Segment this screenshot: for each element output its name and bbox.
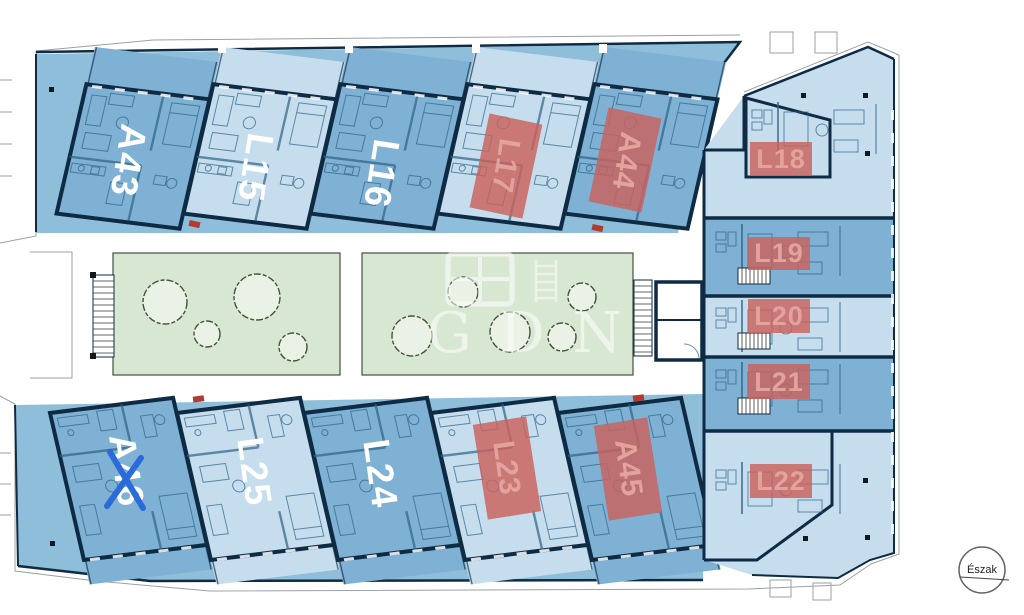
elevator-core — [656, 282, 702, 360]
floor-plan-drawing: A43 L15 L16 L17 A44 A46 L25 L24 L23 A45 … — [0, 0, 1024, 615]
label-l21: L21 — [754, 367, 804, 397]
compass: Észak — [959, 547, 1009, 593]
label-l22: L22 — [756, 466, 806, 496]
label-l20: L20 — [754, 301, 804, 331]
label-l19: L19 — [754, 238, 804, 268]
floor-plan-page: A43 L15 L16 L17 A44 A46 L25 L24 L23 A45 … — [0, 0, 1024, 615]
compass-label: Észak — [967, 563, 997, 576]
watermark-text: GDN — [427, 301, 650, 366]
stair-core-left — [90, 272, 114, 359]
label-l18: L18 — [756, 144, 806, 174]
